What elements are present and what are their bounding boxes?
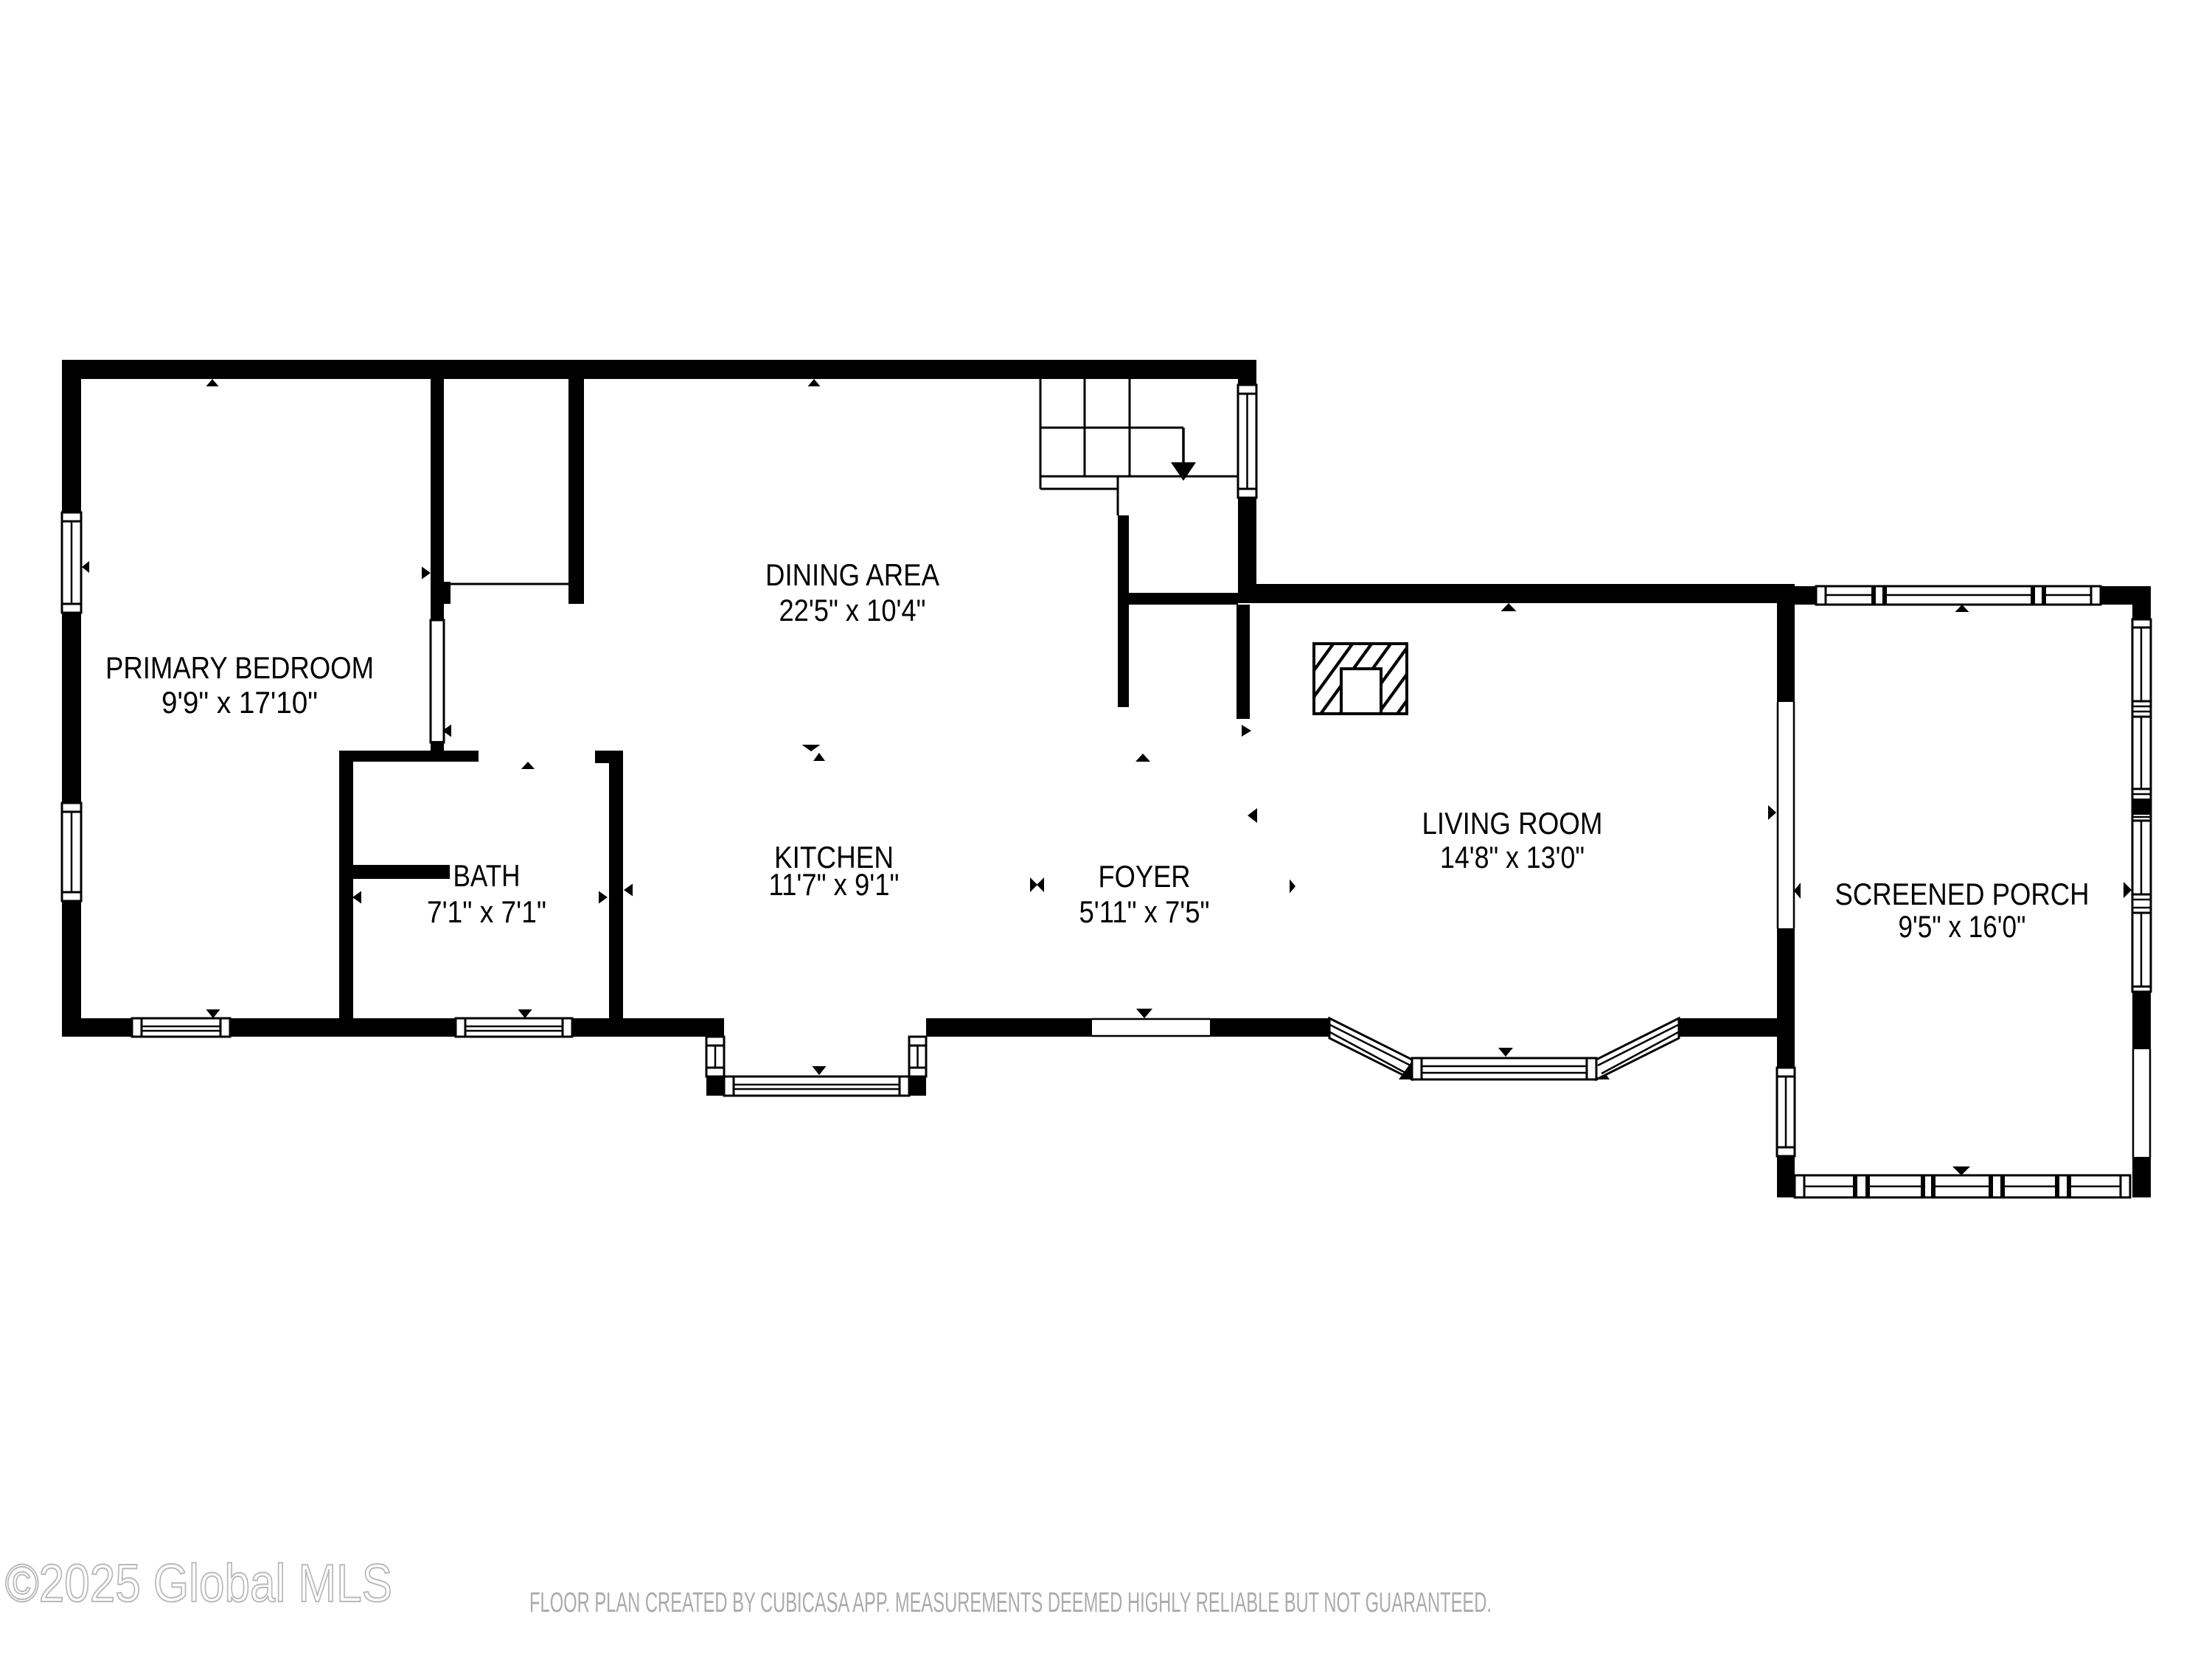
svg-text:9'5" x 16'0": 9'5" x 16'0": [1899, 909, 2026, 944]
svg-text:9'9" x 17'10": 9'9" x 17'10": [161, 685, 318, 720]
svg-text:FLOOR PLAN CREATED BY CUBICASA: FLOOR PLAN CREATED BY CUBICASA APP. MEAS…: [529, 1587, 1492, 1618]
svg-text:5'11" x 7'5": 5'11" x 7'5": [1079, 894, 1210, 929]
svg-text:LIVING ROOM: LIVING ROOM: [1422, 806, 1603, 841]
svg-text:22'5" x 10'4": 22'5" x 10'4": [779, 593, 926, 627]
svg-text:11'7" x 9'1": 11'7" x 9'1": [769, 867, 900, 902]
svg-text:7'1" x 7'1": 7'1" x 7'1": [427, 894, 546, 929]
svg-text:SCREENED PORCH: SCREENED PORCH: [1835, 877, 2090, 911]
svg-text:FOYER: FOYER: [1099, 859, 1191, 894]
svg-text:BATH: BATH: [453, 858, 521, 893]
svg-text:©2025 Global MLS: ©2025 Global MLS: [5, 1554, 392, 1613]
svg-text:14'8" x 13'0": 14'8" x 13'0": [1440, 840, 1585, 874]
svg-text:DINING AREA: DINING AREA: [765, 557, 939, 592]
svg-text:PRIMARY BEDROOM: PRIMARY BEDROOM: [105, 650, 374, 685]
